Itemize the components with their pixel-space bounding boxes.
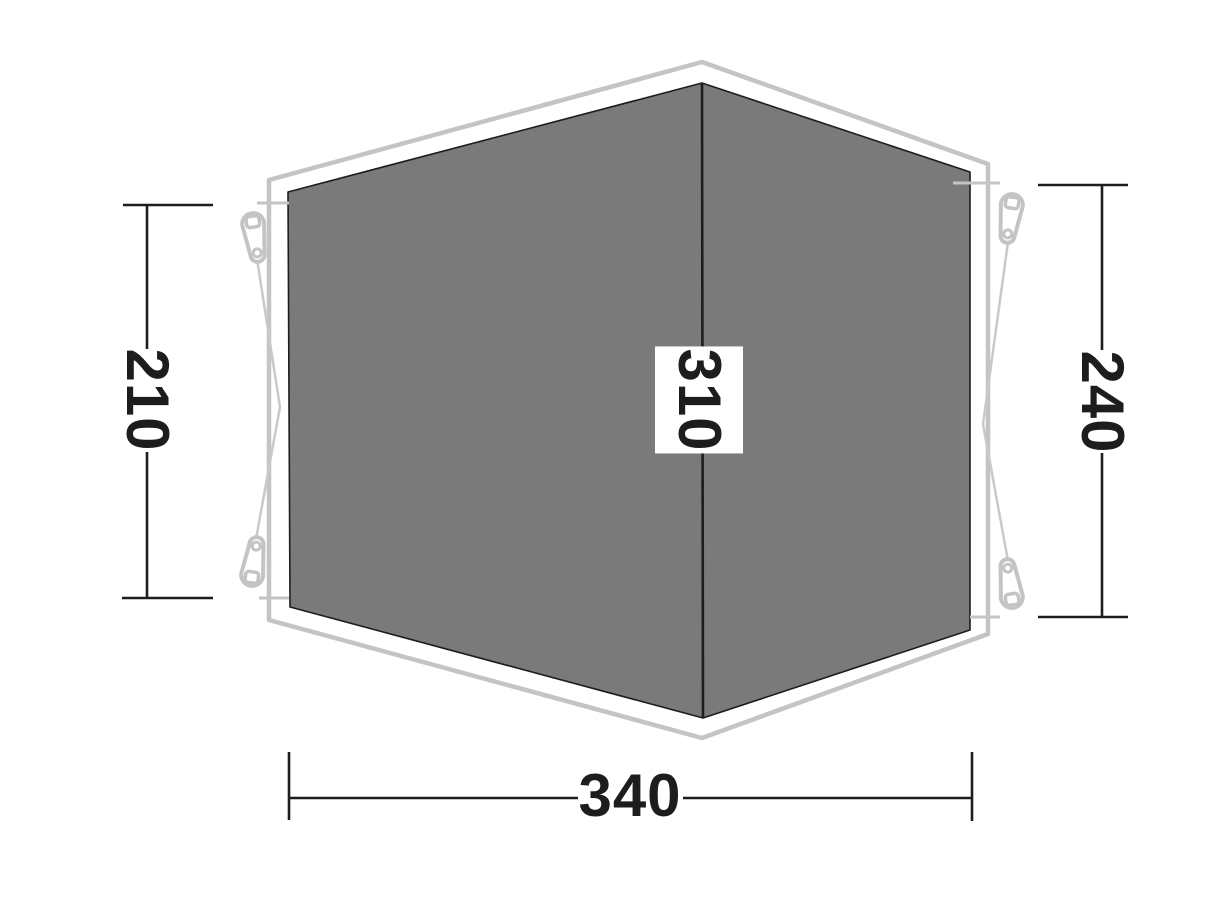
dimension-label-bottom: 340: [578, 766, 681, 826]
dimension-label-center: 310: [655, 346, 743, 453]
tent-peg-icon-bottom-left: [240, 536, 269, 588]
tent-peg-icon-bottom-right: [996, 558, 1025, 610]
tent-peg-icon-top-left: [241, 212, 270, 264]
tent-peg-icon-top-right: [996, 193, 1025, 245]
tent-footprint-diagram: 210 310 240 340: [0, 0, 1230, 898]
dimension-label-right: 240: [1072, 350, 1132, 453]
dimension-label-left: 210: [117, 348, 177, 451]
groundsheet: [288, 83, 970, 718]
